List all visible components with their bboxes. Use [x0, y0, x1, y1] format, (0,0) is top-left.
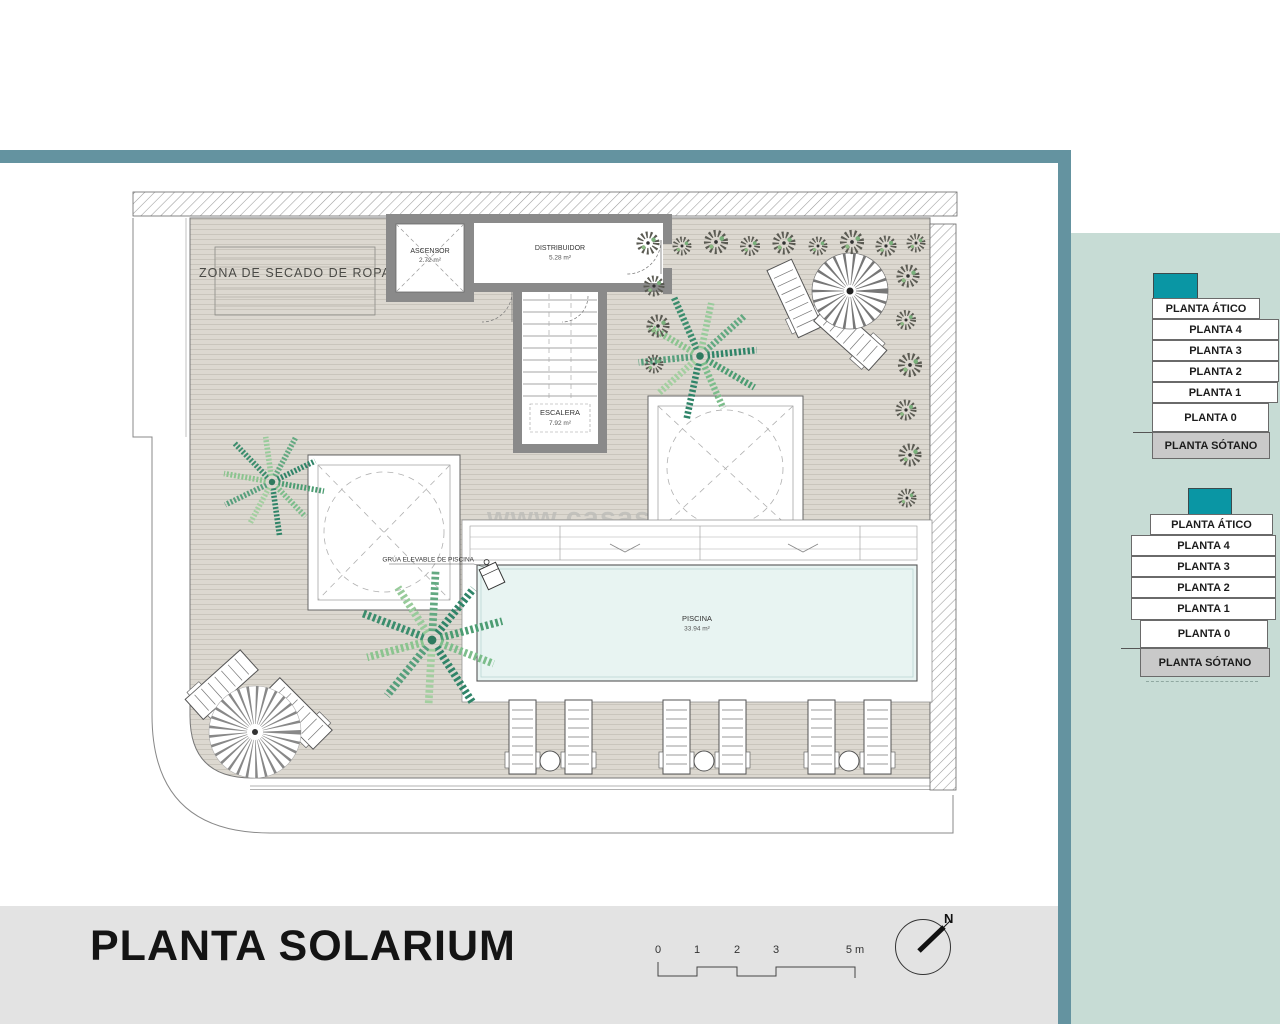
watermark: www.casasw — [486, 502, 675, 534]
hatched-border-band — [133, 192, 957, 790]
core-rooms: ASCENSOR 2.72 m² DISTRIBUIDOR 5.28 m² ES… — [386, 214, 672, 453]
stack-bottom-floor-planta-3[interactable]: PLANTA 3 — [1131, 556, 1276, 577]
palm-trees — [215, 277, 783, 726]
skylight-center — [648, 396, 803, 541]
north-letter: N — [944, 911, 953, 926]
lift-label: ASCENSOR — [410, 248, 449, 255]
frame-border-top — [0, 150, 1071, 163]
pool-label: PISCINA — [682, 614, 712, 623]
stack-bottom-ground-line — [1121, 648, 1140, 649]
sun-loungers — [505, 700, 895, 774]
stack-bottom-floor-planta-0[interactable]: PLANTA 0 — [1140, 620, 1268, 648]
pool-area: PISCINA 33.94 m² — [462, 520, 932, 702]
drying-zone-label: ZONA DE SECADO DE ROPA — [199, 266, 391, 280]
parasol-bottom-left — [183, 647, 335, 778]
stack-top-floor-planta-2[interactable]: PLANTA 2 — [1152, 361, 1279, 382]
scale-tick-3: 3 — [773, 944, 779, 956]
stack-bottom-floor-planta-4[interactable]: PLANTA 4 — [1131, 535, 1276, 556]
pool-area-value: 33.94 m² — [684, 626, 710, 633]
stack-top-floor-planta-4[interactable]: PLANTA 4 — [1152, 319, 1279, 340]
hall-label: DISTRIBUIDOR — [535, 245, 585, 252]
lift-area-value: 2.72 m² — [419, 257, 442, 264]
stack-top-ground-line — [1133, 432, 1152, 433]
stack-bottom-floor-planta-2[interactable]: PLANTA 2 — [1131, 577, 1276, 598]
scale-tick-1: 1 — [694, 944, 700, 956]
stack-top-floor-planta-0[interactable]: PLANTA 0 — [1152, 403, 1269, 432]
stack-bottom-baseline — [1146, 681, 1258, 682]
parasol-top-right — [763, 253, 889, 373]
scale-tick-2: 2 — [734, 944, 740, 956]
frame-border-right — [1058, 150, 1071, 1024]
stack-top-floor-planta-1[interactable]: PLANTA 1 — [1152, 382, 1278, 403]
pool-hoist-label: GRÚA ELEVABLE DE PISCINA — [382, 555, 474, 564]
plot-outline — [133, 218, 953, 833]
page-title: PLANTA SOLARIUM — [90, 922, 516, 971]
stack-top-roof-solarium-indicator[interactable] — [1153, 273, 1198, 299]
stack-top-floor-planta-sotano[interactable]: PLANTA SÓTANO — [1152, 432, 1270, 459]
roof-deck — [190, 218, 930, 778]
stair-label: ESCALERA — [540, 408, 580, 417]
plant-border — [640, 233, 923, 504]
drying-zone: ZONA DE SECADO DE ROPA — [199, 247, 391, 315]
scale-tick-0: 0 — [655, 944, 661, 956]
pool-hoist: GRÚA ELEVABLE DE PISCINA — [382, 555, 504, 590]
skylight-left — [308, 455, 460, 610]
stair-area-value: 7.92 m² — [549, 420, 572, 427]
stack-top-floor-planta-atico[interactable]: PLANTA ÁTICO — [1152, 298, 1260, 319]
stack-bottom-floor-planta-atico[interactable]: PLANTA ÁTICO — [1150, 514, 1273, 535]
stack-bottom-roof-solarium-indicator[interactable] — [1188, 488, 1232, 515]
scale-tick-5m: 5 m — [846, 944, 864, 956]
stack-top-floor-planta-3[interactable]: PLANTA 3 — [1152, 340, 1279, 361]
stack-bottom-floor-planta-1[interactable]: PLANTA 1 — [1131, 598, 1276, 620]
hall-area-value: 5.28 m² — [549, 255, 572, 262]
stack-bottom-floor-planta-sotano[interactable]: PLANTA SÓTANO — [1140, 648, 1270, 677]
